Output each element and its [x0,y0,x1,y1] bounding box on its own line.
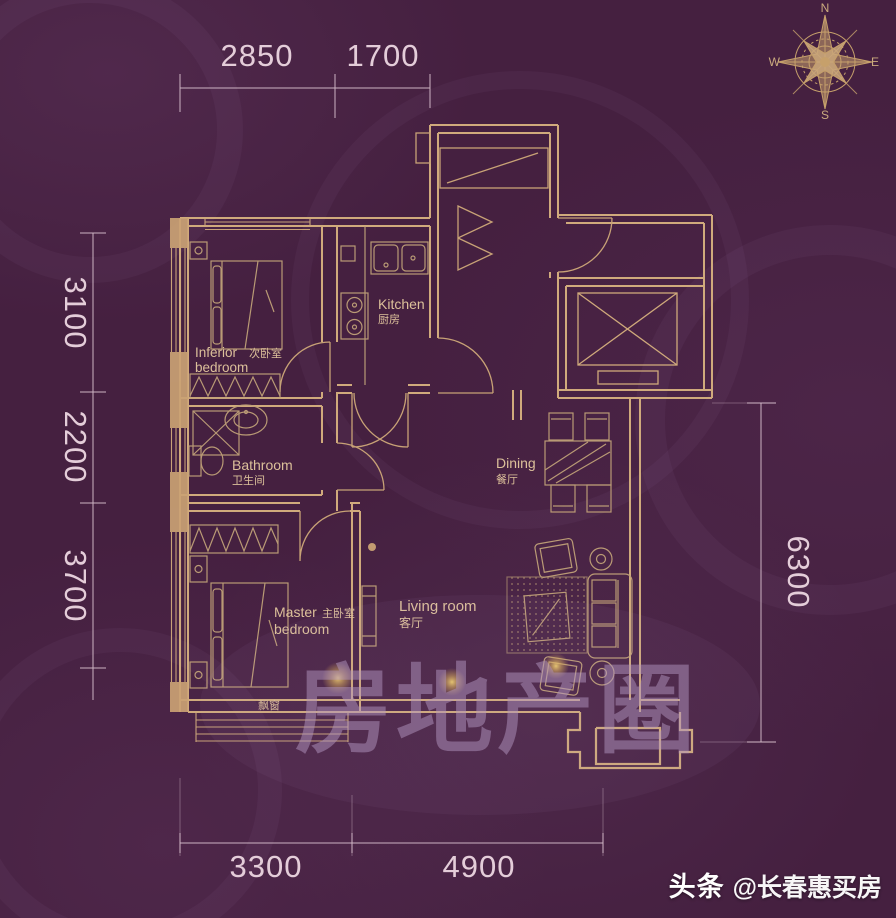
column-marker [368,543,376,551]
entry-vestibule [416,133,548,270]
label-bathroom-zh: 卫生间 [232,473,265,487]
master-door [300,511,350,561]
toilet-tank [189,446,201,476]
channel-watermark-brand: 头条 [669,865,725,904]
sink [225,405,267,435]
label-bedroom2-en2: bedroom [195,360,248,375]
wardrobe-zigzag [190,377,280,396]
wardrobe-zigzag [190,528,278,551]
entry-double-door-icon [458,206,492,270]
label-dining-zh: 餐厅 [496,472,518,486]
entry-door-swing [558,218,612,272]
channel-watermark-handle: @长春惠买房 [733,868,882,904]
label-bedroom2-zh: 次卧室 [249,346,282,360]
dim-left-2: 2200 [58,411,93,484]
compass-east: E [871,55,879,69]
center-watermark-text: 房地产圈 [295,653,699,767]
channel-watermark: 头条 @长春惠买房 [669,865,882,904]
armchair [534,538,577,578]
center-watermark: 房地产圈 [200,595,760,815]
dim-bottom-1: 3300 [230,849,303,884]
dim-left-1: 3100 [58,277,93,350]
label-dining-en: Dining [496,455,536,471]
compass-icon: N S W E [769,1,879,122]
floor-plan-page: 2850 1700 3100 2200 3700 6300 3300 4900 [0,0,896,918]
corridor-door [438,338,493,393]
compass-west: W [769,55,781,69]
dim-right-1: 6300 [781,536,816,609]
chair [585,413,609,440]
label-kitchen-en: Kitchen [378,296,425,312]
chair [549,413,573,440]
side-table [590,548,612,570]
floor-plan-canvas: 2850 1700 3100 2200 3700 6300 3300 4900 [0,0,896,918]
label-bathroom-en: Bathroom [232,457,293,473]
compass-south: S [821,108,829,122]
dim-top-2: 1700 [347,38,420,73]
dim-bottom-2: 4900 [443,849,516,884]
label-bedroom2-en1: Inferior [195,345,238,360]
toilet-bowl [201,447,223,475]
label-kitchen-zh: 厨房 [378,313,400,326]
stove [341,293,368,339]
dim-top-1: 2850 [221,38,294,73]
kitchen-sink [371,242,428,274]
compass-north: N [821,1,830,15]
dim-left-3: 3700 [58,550,93,623]
